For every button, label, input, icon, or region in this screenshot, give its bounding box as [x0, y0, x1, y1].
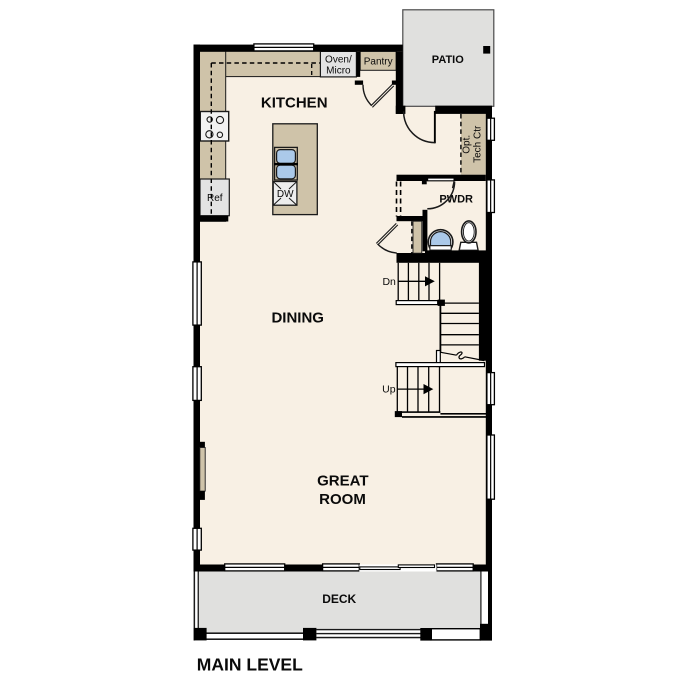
svg-text:MAIN LEVEL: MAIN LEVEL: [197, 654, 303, 674]
svg-text:ROOM: ROOM: [319, 491, 366, 508]
svg-text:GREAT: GREAT: [317, 473, 368, 490]
svg-text:PWDR: PWDR: [439, 194, 473, 206]
svg-text:Micro: Micro: [326, 66, 351, 77]
svg-text:Dn: Dn: [382, 276, 396, 288]
svg-text:Oven/: Oven/: [325, 55, 352, 66]
svg-text:DW: DW: [277, 189, 294, 200]
svg-text:DINING: DINING: [271, 310, 324, 327]
svg-text:Up: Up: [382, 384, 396, 396]
svg-text:PATIO: PATIO: [432, 54, 464, 66]
svg-text:DECK: DECK: [322, 592, 356, 606]
svg-text:Tech Ctr: Tech Ctr: [472, 125, 483, 163]
svg-text:KITCHEN: KITCHEN: [261, 95, 328, 112]
svg-text:Pantry: Pantry: [364, 57, 393, 68]
svg-text:Ref: Ref: [207, 193, 223, 204]
svg-text:Opt.: Opt.: [461, 135, 472, 154]
